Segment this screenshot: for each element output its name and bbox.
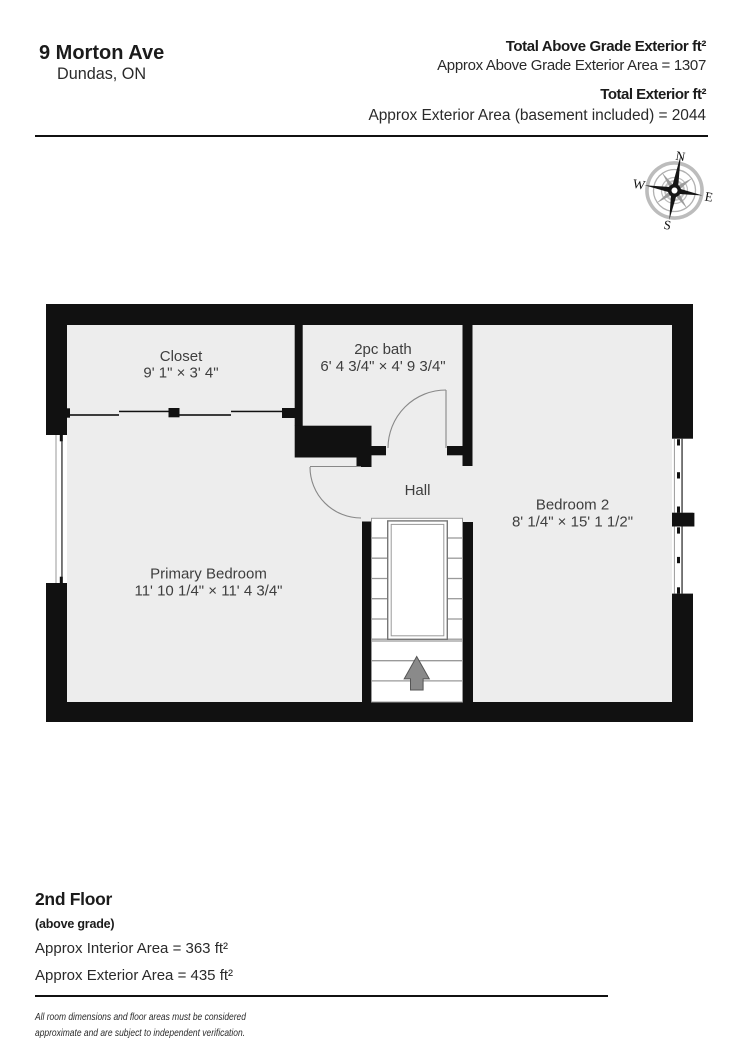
svg-text:E: E <box>704 189 714 205</box>
svg-text:Closet: Closet <box>160 348 203 365</box>
svg-text:2pc bath: 2pc bath <box>354 341 412 358</box>
svg-text:9' 1" × 3' 4": 9' 1" × 3' 4" <box>143 365 218 382</box>
svg-text:11' 10 1/4" × 11' 4 3/4": 11' 10 1/4" × 11' 4 3/4" <box>134 583 282 600</box>
svg-text:8' 1/4" × 15' 1 1/2": 8' 1/4" × 15' 1 1/2" <box>512 514 633 531</box>
svg-text:N: N <box>675 148 687 165</box>
svg-text:6' 4 3/4" × 4' 9 3/4": 6' 4 3/4" × 4' 9 3/4" <box>320 358 445 375</box>
svg-text:Hall: Hall <box>405 482 431 499</box>
svg-text:W: W <box>632 176 647 193</box>
svg-text:S: S <box>663 217 673 233</box>
svg-text:Primary Bedroom: Primary Bedroom <box>150 566 267 583</box>
svg-text:Bedroom 2: Bedroom 2 <box>536 497 609 514</box>
